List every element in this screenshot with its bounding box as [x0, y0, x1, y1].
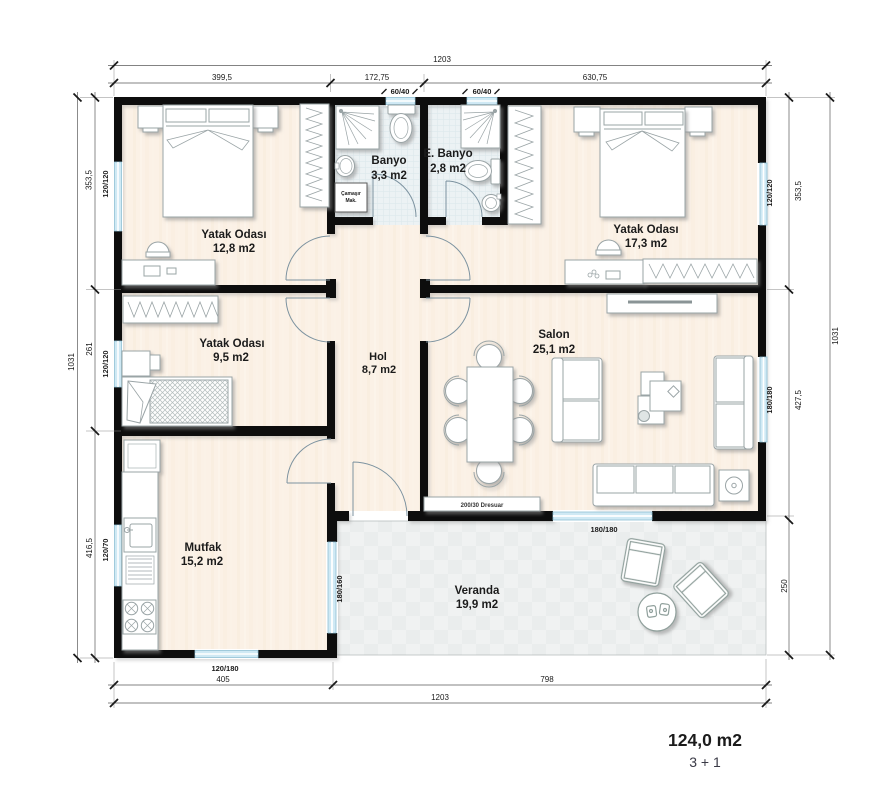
- svg-text:180/160: 180/160: [335, 575, 344, 602]
- svg-text:9,5 m2: 9,5 m2: [213, 352, 249, 364]
- svg-text:798: 798: [540, 675, 554, 684]
- svg-text:180/180: 180/180: [765, 386, 774, 413]
- svg-text:3,3 m2: 3,3 m2: [371, 170, 407, 182]
- svg-text:120/180: 120/180: [211, 664, 238, 673]
- svg-text:427,5: 427,5: [794, 389, 803, 410]
- svg-text:60/40: 60/40: [391, 87, 410, 96]
- svg-text:Mak.: Mak.: [345, 198, 357, 204]
- svg-text:Veranda: Veranda: [455, 585, 500, 597]
- svg-text:Yatak Odası: Yatak Odası: [201, 229, 266, 241]
- svg-text:353,5: 353,5: [85, 169, 94, 190]
- svg-text:60/40: 60/40: [473, 87, 492, 96]
- svg-text:120/120: 120/120: [101, 170, 110, 197]
- svg-text:15,2 m2: 15,2 m2: [181, 556, 223, 568]
- svg-text:12,8 m2: 12,8 m2: [213, 243, 255, 255]
- svg-text:416,5: 416,5: [85, 537, 94, 558]
- svg-text:405: 405: [216, 675, 230, 684]
- svg-text:120/70: 120/70: [101, 539, 110, 562]
- svg-text:1031: 1031: [831, 327, 840, 345]
- svg-text:120/120: 120/120: [765, 179, 774, 206]
- svg-text:180/180: 180/180: [590, 525, 617, 534]
- svg-text:E. Banyo: E. Banyo: [423, 148, 472, 160]
- svg-text:120/120: 120/120: [101, 350, 110, 377]
- svg-text:2,8 m2: 2,8 m2: [430, 163, 466, 175]
- svg-text:1203: 1203: [433, 55, 451, 64]
- svg-text:Banyo: Banyo: [371, 155, 406, 167]
- svg-text:124,0 m2: 124,0 m2: [668, 730, 742, 750]
- svg-text:250: 250: [780, 579, 789, 593]
- svg-text:Çamaşır: Çamaşır: [341, 191, 361, 197]
- svg-text:8,7 m2: 8,7 m2: [362, 364, 396, 376]
- svg-text:1203: 1203: [431, 693, 449, 702]
- svg-text:172,75: 172,75: [365, 73, 390, 82]
- svg-text:Salon: Salon: [538, 329, 569, 341]
- svg-text:630,75: 630,75: [583, 73, 608, 82]
- svg-text:Yatak Odası: Yatak Odası: [199, 338, 264, 350]
- svg-text:19,9 m2: 19,9 m2: [456, 599, 498, 611]
- svg-text:Mutfak: Mutfak: [184, 542, 222, 554]
- svg-text:1031: 1031: [67, 353, 76, 371]
- svg-text:353,5: 353,5: [794, 180, 803, 201]
- svg-text:17,3 m2: 17,3 m2: [625, 238, 667, 250]
- svg-text:399,5: 399,5: [212, 73, 233, 82]
- svg-text:200/30 Dresuar: 200/30 Dresuar: [461, 503, 504, 509]
- svg-text:Hol: Hol: [369, 351, 387, 363]
- svg-text:25,1 m2: 25,1 m2: [533, 344, 575, 356]
- svg-text:Yatak Odası: Yatak Odası: [613, 224, 678, 236]
- svg-text:3 + 1: 3 + 1: [689, 754, 721, 770]
- svg-text:261: 261: [85, 342, 94, 356]
